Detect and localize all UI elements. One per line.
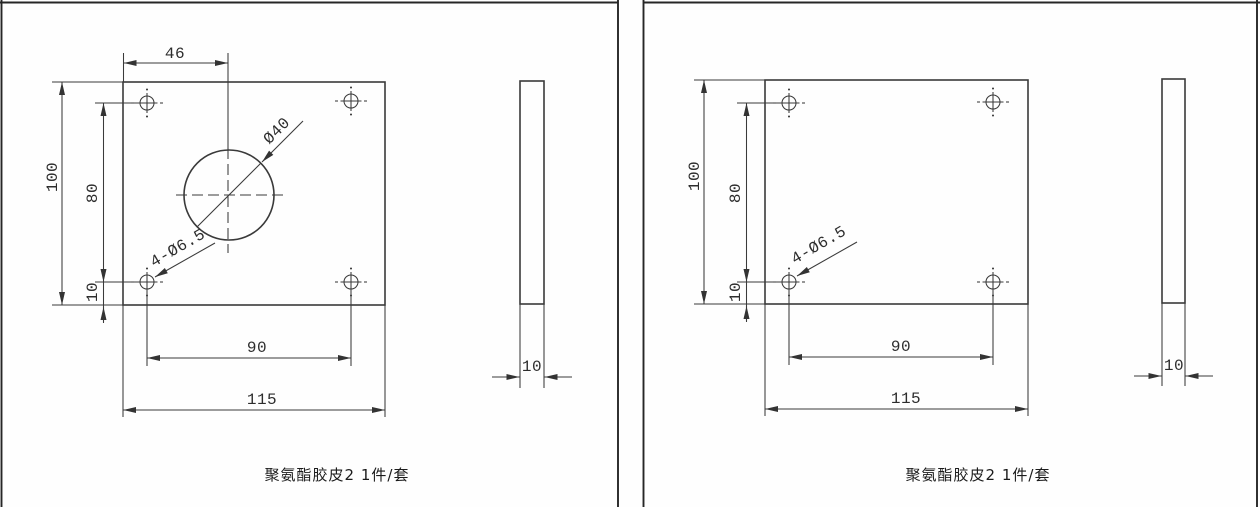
dim-thickness: 10 bbox=[492, 304, 572, 388]
dim-edge-offset: 10 bbox=[727, 282, 747, 322]
dim-width-top: 46 bbox=[124, 45, 229, 150]
left-sheet: 46 100 80 10 90 bbox=[0, 0, 630, 507]
side-view: 10 bbox=[1134, 79, 1213, 386]
dim-plate-height: 100 bbox=[686, 80, 765, 304]
hole-top-right bbox=[335, 87, 367, 116]
dim-edge-offset-value: 10 bbox=[727, 282, 745, 302]
dim-hole-row-span: 80 bbox=[727, 103, 782, 282]
dim-hole-col-span-value: 90 bbox=[247, 339, 267, 357]
dim-hole-row-span: 80 bbox=[84, 103, 140, 282]
sheet-border bbox=[643, 0, 1260, 507]
dim-plate-width: 115 bbox=[765, 304, 1028, 416]
dim-plate-width-value: 115 bbox=[891, 390, 921, 408]
dim-width-top-value: 46 bbox=[165, 45, 185, 63]
dim-hole-col-span-value: 90 bbox=[891, 338, 911, 356]
dim-plate-height-value: 100 bbox=[686, 161, 704, 191]
plate-outline bbox=[765, 80, 1028, 304]
hole-top-right bbox=[977, 88, 1009, 117]
center-hole-label: Ø40 bbox=[260, 114, 294, 148]
dim-plate-width-value: 115 bbox=[247, 391, 277, 409]
dim-thickness: 10 bbox=[1134, 303, 1213, 386]
plate-outline bbox=[123, 82, 385, 305]
dim-edge-offset-value: 10 bbox=[84, 282, 102, 302]
part-caption: 聚氨酯胶皮2 1件/套 bbox=[265, 466, 410, 484]
dim-plate-height-value: 100 bbox=[44, 162, 62, 192]
right-sheet: 100 80 10 90 115 bbox=[630, 0, 1260, 507]
dim-hole-col-span: 90 bbox=[789, 292, 993, 365]
dim-plate-width: 115 bbox=[123, 305, 385, 417]
front-view bbox=[765, 80, 1028, 304]
dim-hole-row-span-value: 80 bbox=[84, 183, 102, 203]
side-view: 10 bbox=[492, 81, 572, 388]
sheet-border bbox=[0, 0, 618, 507]
side-outline bbox=[520, 81, 544, 304]
corner-holes-label: 4-Ø6.5 bbox=[788, 223, 849, 269]
dim-hole-col-span: 90 bbox=[147, 292, 351, 366]
dim-hole-row-span-value: 80 bbox=[727, 183, 745, 203]
leader-corner-holes: 4-Ø6.5 bbox=[788, 223, 857, 276]
part-caption: 聚氨酯胶皮2 1件/套 bbox=[906, 466, 1051, 484]
leader-center-hole: Ø40 bbox=[197, 114, 303, 227]
dim-thickness-value: 10 bbox=[522, 358, 542, 376]
front-view bbox=[123, 82, 385, 305]
side-outline bbox=[1162, 79, 1185, 303]
corner-holes-label: 4-Ø6.5 bbox=[147, 226, 208, 272]
dim-thickness-value: 10 bbox=[1164, 357, 1184, 375]
dim-edge-offset: 10 bbox=[84, 282, 104, 323]
technical-drawing: 46 100 80 10 90 bbox=[0, 0, 1260, 507]
